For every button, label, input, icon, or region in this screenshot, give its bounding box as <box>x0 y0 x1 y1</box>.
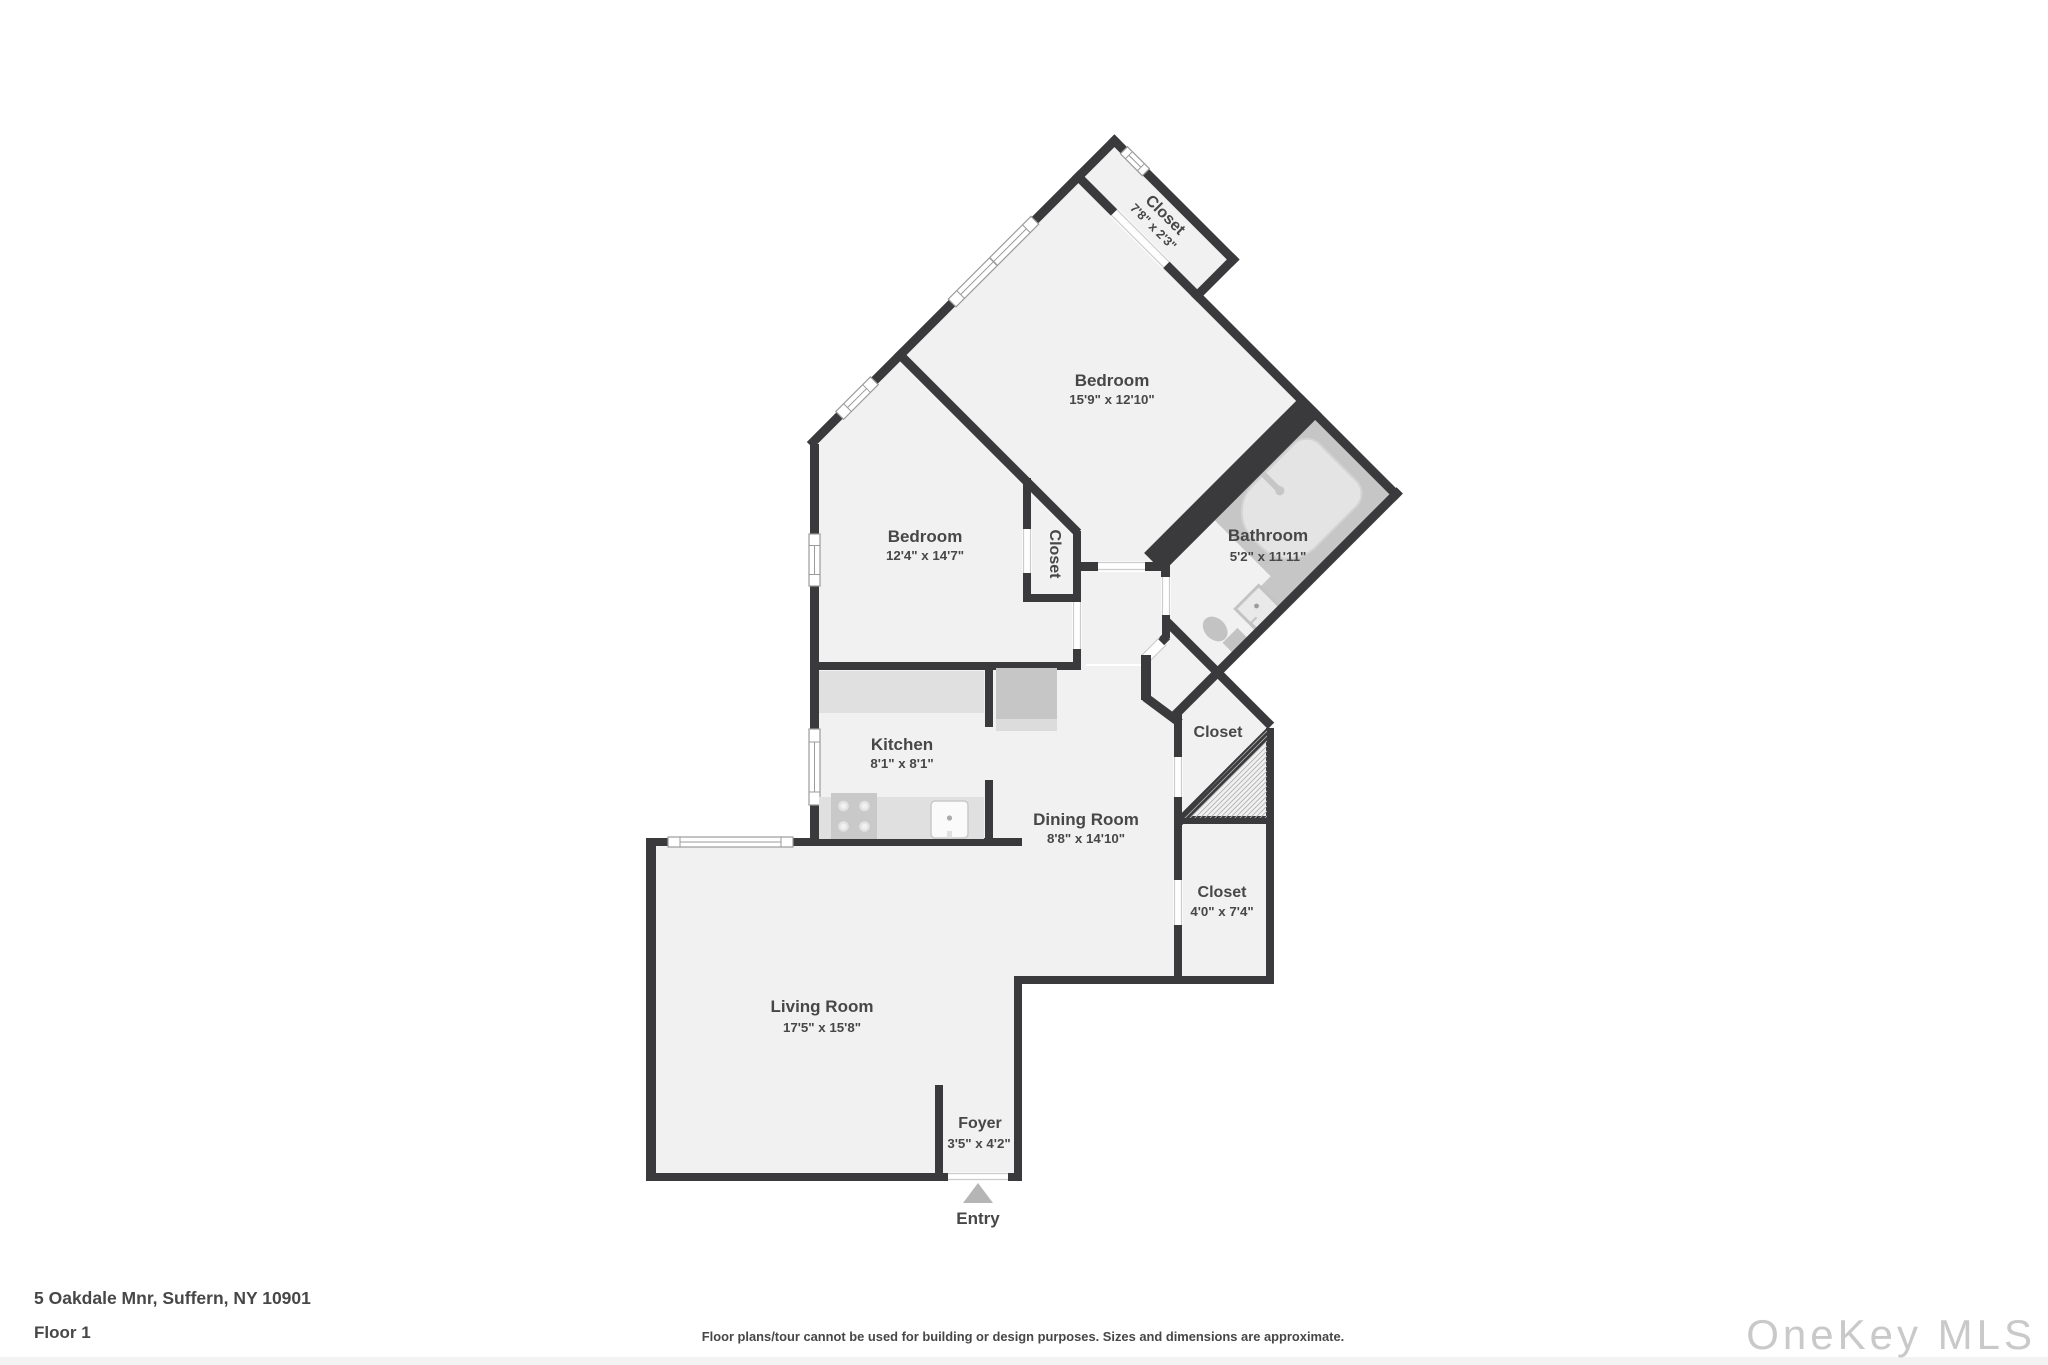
svg-text:Foyer: Foyer <box>958 1115 1002 1132</box>
svg-text:Kitchen: Kitchen <box>871 735 933 754</box>
svg-text:8'1" x 8'1": 8'1" x 8'1" <box>870 756 933 771</box>
svg-text:Dining Room: Dining Room <box>1033 810 1139 829</box>
svg-text:17'5" x 15'8": 17'5" x 15'8" <box>783 1020 861 1035</box>
svg-text:OneKey MLS: OneKey MLS <box>1746 1311 2036 1358</box>
svg-text:Closet: Closet <box>1194 724 1244 741</box>
svg-text:Closet: Closet <box>1198 884 1248 901</box>
svg-text:4'0" x 7'4": 4'0" x 7'4" <box>1190 904 1253 919</box>
svg-text:3'5" x 4'2": 3'5" x 4'2" <box>947 1136 1010 1151</box>
svg-text:Bedroom: Bedroom <box>888 527 963 546</box>
svg-text:12'4" x 14'7": 12'4" x 14'7" <box>886 548 964 563</box>
svg-text:Floor 1: Floor 1 <box>34 1323 91 1342</box>
svg-text:Bedroom: Bedroom <box>1075 371 1150 390</box>
svg-text:Bathroom: Bathroom <box>1228 526 1308 545</box>
svg-text:Living Room: Living Room <box>771 997 874 1016</box>
svg-text:Closet: Closet <box>1046 530 1063 580</box>
svg-text:Floor plans/tour cannot be use: Floor plans/tour cannot be used for buil… <box>702 1329 1344 1344</box>
svg-text:5'2" x 11'11": 5'2" x 11'11" <box>1230 549 1307 564</box>
svg-text:Entry: Entry <box>956 1209 1000 1228</box>
svg-text:5 Oakdale Mnr, Suffern, NY 109: 5 Oakdale Mnr, Suffern, NY 10901 <box>34 1288 311 1308</box>
svg-text:8'8" x 14'10": 8'8" x 14'10" <box>1047 831 1125 846</box>
svg-text:15'9" x 12'10": 15'9" x 12'10" <box>1069 392 1154 407</box>
